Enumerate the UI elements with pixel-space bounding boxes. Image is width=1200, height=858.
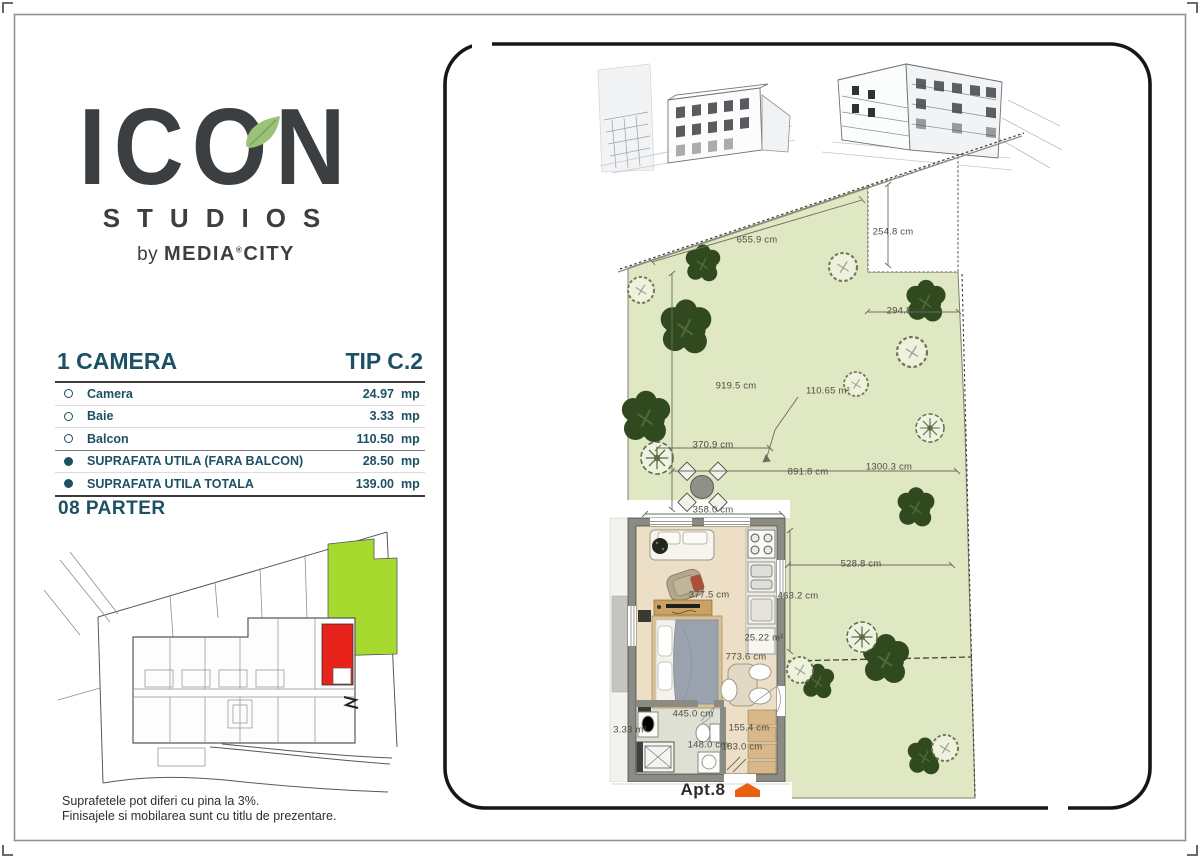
dimension-label: 254.8 cm: [873, 227, 914, 238]
dimension-label: 155.4 cm: [729, 723, 770, 734]
disclaimer: Suprafetele pot diferi cu pina la 3%. Fi…: [62, 794, 336, 824]
dimension-label: 463.2 cm: [778, 591, 819, 602]
apartment-label: Apt.8: [681, 780, 726, 800]
plant: [652, 538, 668, 554]
dimension-label: 370.9 cm: [693, 440, 734, 451]
filled-bullet-icon: [64, 457, 73, 466]
leaf-icon: [242, 112, 286, 152]
bed: [652, 616, 722, 708]
floor-label: 08 PARTER: [58, 498, 166, 520]
spec-row: SUPRAFATA UTILA (FARA BALCON) 28.50 mp: [55, 451, 425, 474]
logo-brand: ICON: [60, 92, 372, 201]
dimension-label: 358.0 cm: [693, 505, 734, 516]
tv-console: [654, 600, 712, 615]
spec-row: Balcon 110.50 mp: [55, 428, 425, 451]
open-bullet-icon: [64, 412, 73, 421]
dimension-label: 919.5 cm: [716, 381, 757, 392]
dimension-label: 183.0 cm: [722, 742, 763, 753]
logo-subbrand: STUDIOS: [60, 203, 372, 234]
area-label: 110.65 m²: [806, 386, 850, 397]
building-render-left: [598, 64, 795, 173]
dimension-label: 377.5 cm: [689, 590, 730, 601]
dimension-label: 294.8 cm: [887, 306, 928, 317]
building-render-right: [822, 64, 1062, 170]
dimension-label: 1300.3 cm: [866, 462, 912, 473]
type-title: 1 CAMERA: [57, 348, 177, 375]
dimension-label: 655.9 cm: [737, 235, 778, 246]
area-label: 25.22 m²: [744, 633, 783, 644]
spec-row: Baie 3.33 mp: [55, 406, 425, 429]
area-label: 3.33 m²: [613, 725, 647, 736]
disclaimer-line: Finisajele si mobilarea sunt cu titlu de…: [62, 809, 336, 824]
nightstand: [638, 610, 651, 622]
spec-header: 1 CAMERA TIP C.2: [55, 346, 425, 383]
spec-row: Camera 24.97 mp: [55, 383, 425, 406]
logo: ICON STUDIOS by MEDIA®CITY: [60, 92, 372, 266]
open-bullet-icon: [64, 389, 73, 398]
site-plan-minimap: [44, 532, 397, 792]
spec-table: 1 CAMERA TIP C.2 Camera 24.97 mp Baie 3.…: [55, 346, 425, 497]
logo-byline: by MEDIA®CITY: [60, 243, 372, 266]
dimension-label: 773.6 cm: [726, 652, 767, 663]
dimension-label: 528.8 cm: [841, 559, 882, 570]
filled-bullet-icon: [64, 479, 73, 488]
open-bullet-icon: [64, 434, 73, 443]
spec-row: SUPRAFATA UTILA TOTALA 139.00 mp: [55, 473, 425, 497]
dimension-label: 891.8 cm: [788, 467, 829, 478]
dimension-label: 445.0 cm: [673, 709, 714, 720]
brochure-page: ICON STUDIOS by MEDIA®CITY 1 CAMERA TIP …: [0, 0, 1200, 858]
disclaimer-line: Suprafetele pot diferi cu pina la 3%.: [62, 794, 336, 809]
type-code: TIP C.2: [345, 348, 423, 375]
